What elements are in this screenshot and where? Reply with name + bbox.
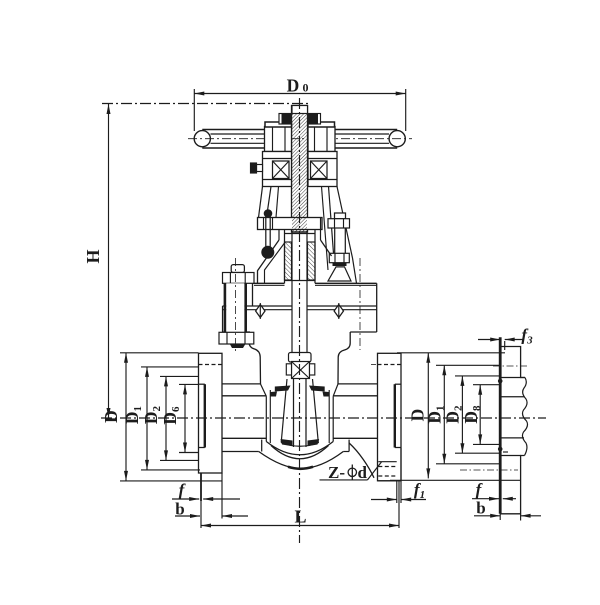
- svg-text:0: 0: [303, 81, 309, 95]
- svg-text:Z-: Z-: [328, 463, 345, 482]
- svg-text:d: d: [358, 463, 368, 482]
- svg-text:b: b: [476, 499, 485, 518]
- svg-text:D: D: [287, 76, 300, 96]
- svg-text:L: L: [294, 507, 306, 527]
- svg-text:b: b: [175, 500, 184, 519]
- svg-text:H: H: [83, 249, 103, 263]
- svg-text:D: D: [101, 410, 121, 423]
